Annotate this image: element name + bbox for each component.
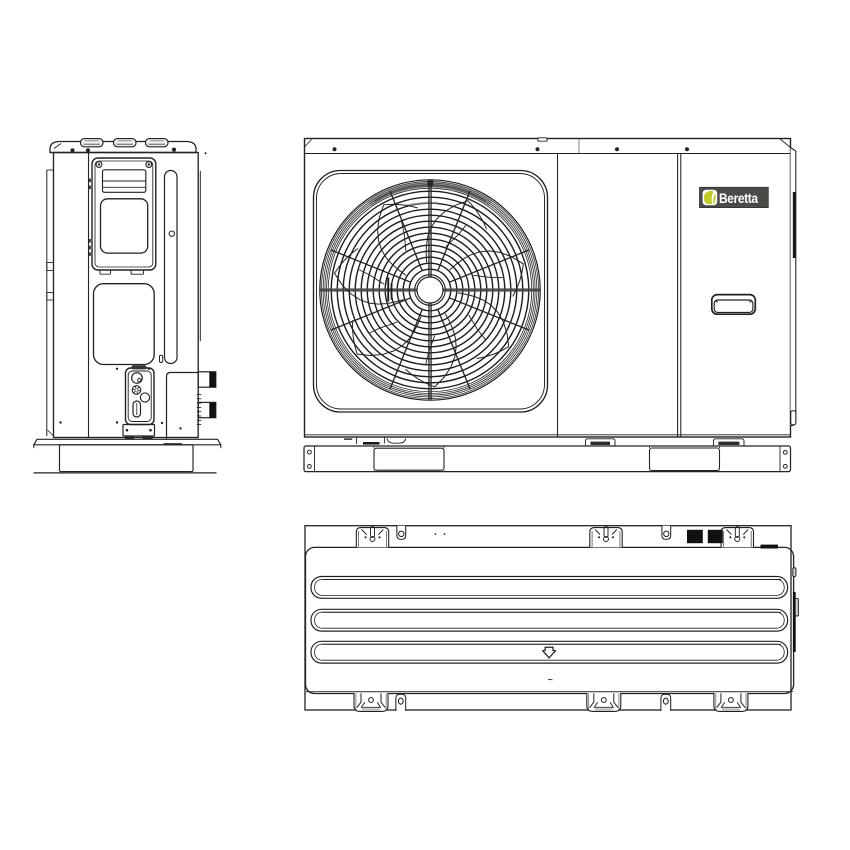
svg-text:Beretta: Beretta	[719, 190, 759, 206]
